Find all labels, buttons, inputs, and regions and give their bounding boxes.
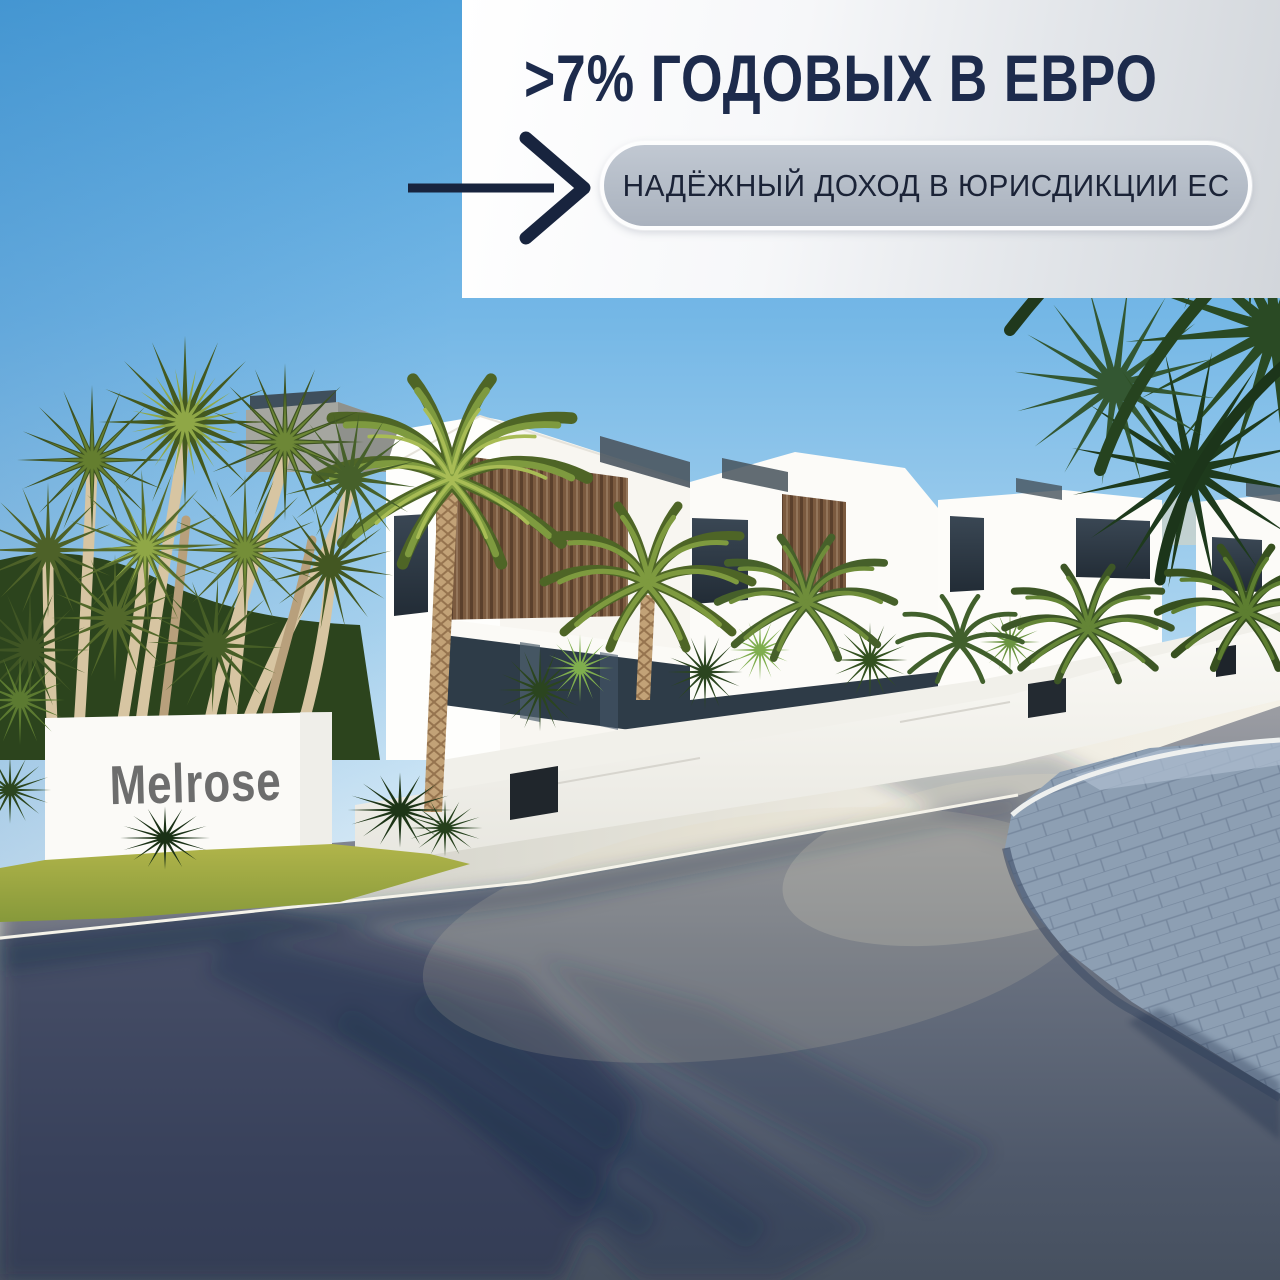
- promo-post: Melrose >7% ГОДОВЫХ В ЕВРО НАДЁЖНЫЙ ДОХО…: [0, 0, 1280, 1280]
- arrow-right-icon: [404, 130, 592, 246]
- offer-headline: >7% ГОДОВЫХ В ЕВРО: [524, 45, 1158, 111]
- wall-utility-box: [510, 766, 558, 820]
- sign-text: Melrose: [109, 750, 282, 816]
- cta-pill-label: НАДЁЖНЫЙ ДОХОД В ЮРИСДИКЦИИ ЕС: [622, 168, 1229, 204]
- wall-utility-box: [1028, 678, 1066, 718]
- cta-pill[interactable]: НАДЁЖНЫЙ ДОХОД В ЮРИСДИКЦИИ ЕС: [600, 141, 1252, 230]
